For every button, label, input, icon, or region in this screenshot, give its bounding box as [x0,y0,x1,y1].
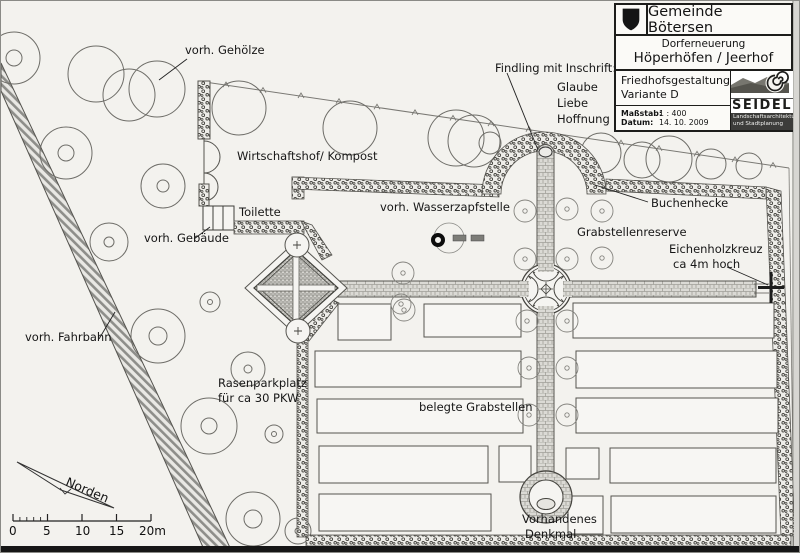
label-grabstellenreserve: Grabstellenreserve [577,226,687,239]
scale-tick-15: 15 [109,524,124,538]
title-block: Gemeinde Bötersen Dorferneuerung Höperhö… [614,3,793,132]
project-line1: Dorferneuerung [616,38,791,50]
firm-logo-box: SEIDEL Landschaftsarchitektur und Stadtp… [730,71,793,130]
project-line2: Höperhöfen / Jeerhof [616,50,791,66]
label-eichenholzkreuz-2: ca 4m hoch [673,258,740,271]
label-wasserzapfstelle: vorh. Wasserzapfstelle [380,201,510,214]
firm-subtitle: Landschaftsarchitektur und Stadtplanung [731,113,793,130]
farm-building [198,81,220,206]
entrance-plaza-diamond [245,233,347,343]
date-label: Datum: [621,118,659,127]
scale-label: Maßstab: [621,109,659,118]
plan-title-line1: Friedhofsgestaltung [621,74,730,87]
water-tap-icon [433,223,484,253]
plan-meta: Maßstab: 1 : 400 Datum: 14. 10. 2009 [616,106,730,130]
scan-edge-bottom [1,546,800,553]
scale-tick-0: 0 [9,524,17,538]
label-denkmal-1: Vorhandenes [522,513,597,526]
scale-bar [13,514,151,521]
scale-tick-10: 10 [75,524,90,538]
label-inschrift-2: Liebe [557,97,588,110]
findling-stone [539,147,552,157]
label-toilette: Toilette [239,206,281,219]
site-plan-scan: vorh. Gehölze Findling mit Inschrift: Gl… [0,0,800,553]
label-eichenholzkreuz-1: Eichenholzkreuz [669,243,763,256]
label-fahrbahn: vorh. Fahrbahn [25,331,112,344]
plan-title-line2: Variante D [621,88,679,101]
label-rasenparkplatz-1: Rasenparkplatz [218,377,307,390]
label-denkmal-2: Denkmal [525,528,576,541]
scale-tick-5: 5 [43,524,51,538]
label-rasenparkplatz-2: für ca 30 PKW [218,392,298,405]
label-findling: Findling mit Inschrift: [495,62,616,75]
toilet-building [203,206,234,230]
label-gehoelze: vorh. Gehölze [185,44,265,57]
date-value: 14. 10. 2009 [659,118,709,127]
label-inschrift-3: Hoffnung [557,113,610,126]
beech-hedge [234,132,795,546]
scale-value: 1 : 400 [659,109,686,118]
coat-of-arms-shield-icon [616,5,648,34]
scale-tick-20: 20m [139,524,166,538]
firm-subtitle-line2: und Stadtplanung [733,121,783,127]
label-buchenhecke: Buchenhecke [651,197,728,210]
label-gebaeude: vorh. Gebäude [144,232,229,245]
project-title: Dorferneuerung Höperhöfen / Jeerhof [616,36,791,71]
firm-name: SEIDEL [731,98,793,113]
label-wirtschaftshof: Wirtschaftshof/ Kompost [237,150,378,163]
title-block-header: Gemeinde Bötersen [616,5,791,36]
plan-title: Friedhofsgestaltung Variante D [616,71,730,106]
label-inschrift-1: Glaube [557,81,598,94]
label-belegte-grabstellen: belegte Grabstellen [419,401,533,414]
firm-subtitle-line1: Landschaftsarchitektur [733,114,797,120]
scan-edge-right [794,1,800,546]
spiral-snail-logo-icon [731,71,793,98]
municipality-title: Gemeinde Bötersen [648,5,791,34]
